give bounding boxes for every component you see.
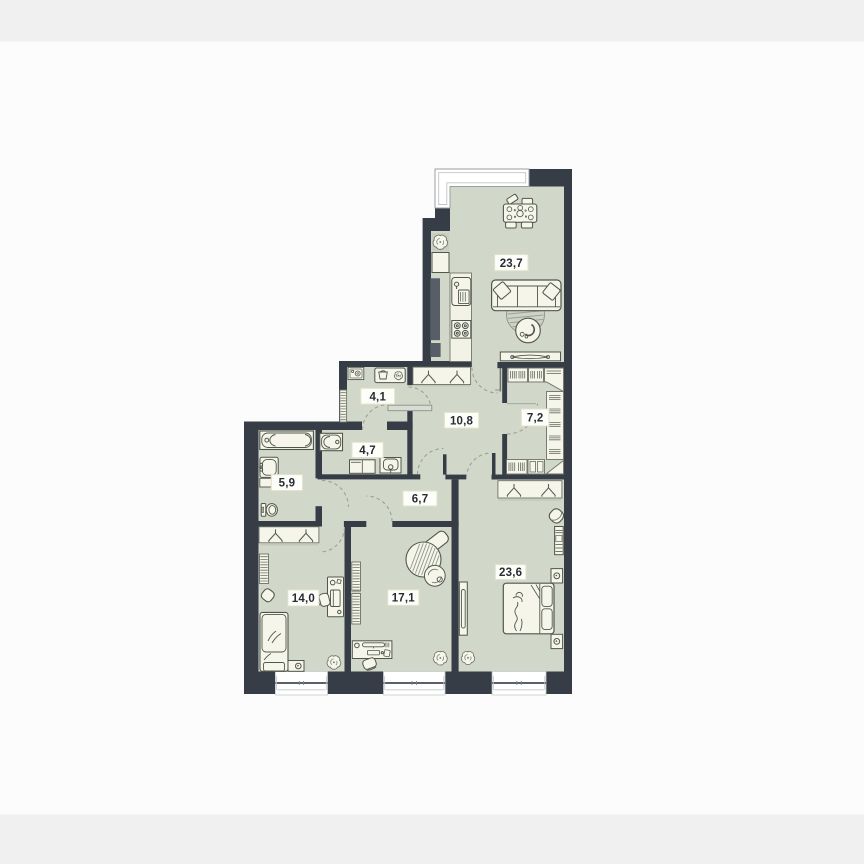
svg-text:4,7: 4,7 — [359, 445, 376, 457]
svg-text:5,9: 5,9 — [279, 478, 296, 490]
svg-text:14,0: 14,0 — [292, 593, 315, 605]
svg-text:23,7: 23,7 — [500, 258, 523, 270]
svg-text:10,8: 10,8 — [450, 415, 474, 427]
svg-text:6,7: 6,7 — [412, 494, 429, 506]
svg-text:4,1: 4,1 — [369, 391, 386, 403]
svg-text:17,1: 17,1 — [392, 593, 416, 605]
svg-text:7,2: 7,2 — [527, 413, 544, 425]
svg-text:23,6: 23,6 — [499, 567, 522, 579]
